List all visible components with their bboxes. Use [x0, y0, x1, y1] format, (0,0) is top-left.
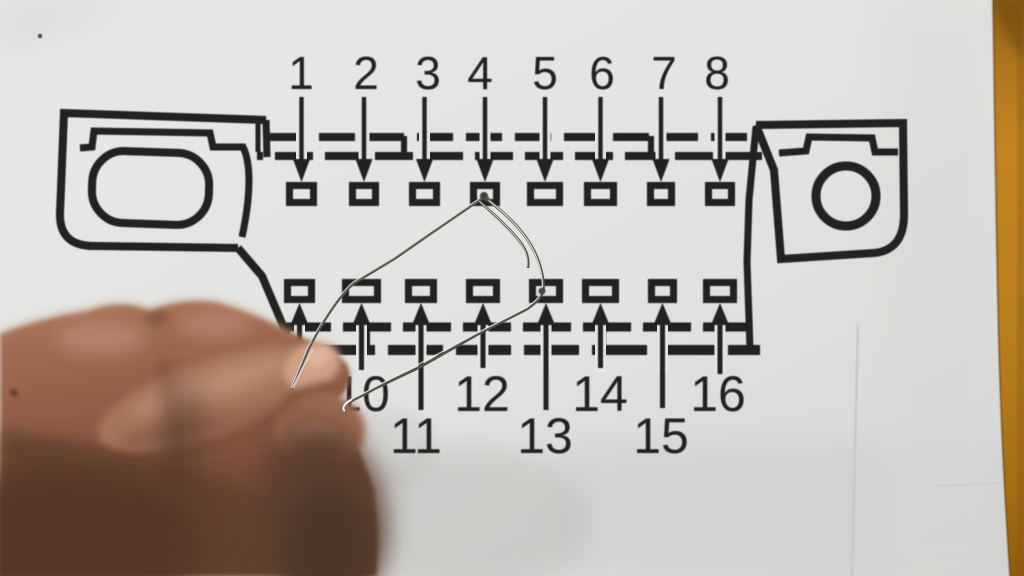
svg-text:13: 13: [517, 408, 573, 464]
svg-text:15: 15: [633, 408, 689, 464]
svg-text:3: 3: [415, 47, 441, 99]
svg-text:6: 6: [589, 47, 615, 99]
svg-text:16: 16: [690, 366, 746, 422]
svg-text:5: 5: [532, 47, 558, 99]
svg-text:7: 7: [651, 47, 677, 99]
svg-text:8: 8: [704, 47, 730, 99]
svg-text:2: 2: [353, 47, 379, 99]
svg-text:11: 11: [390, 408, 442, 464]
svg-text:12: 12: [454, 366, 510, 422]
svg-text:4: 4: [467, 47, 493, 99]
svg-text:1: 1: [288, 47, 314, 99]
svg-text:14: 14: [572, 366, 628, 422]
